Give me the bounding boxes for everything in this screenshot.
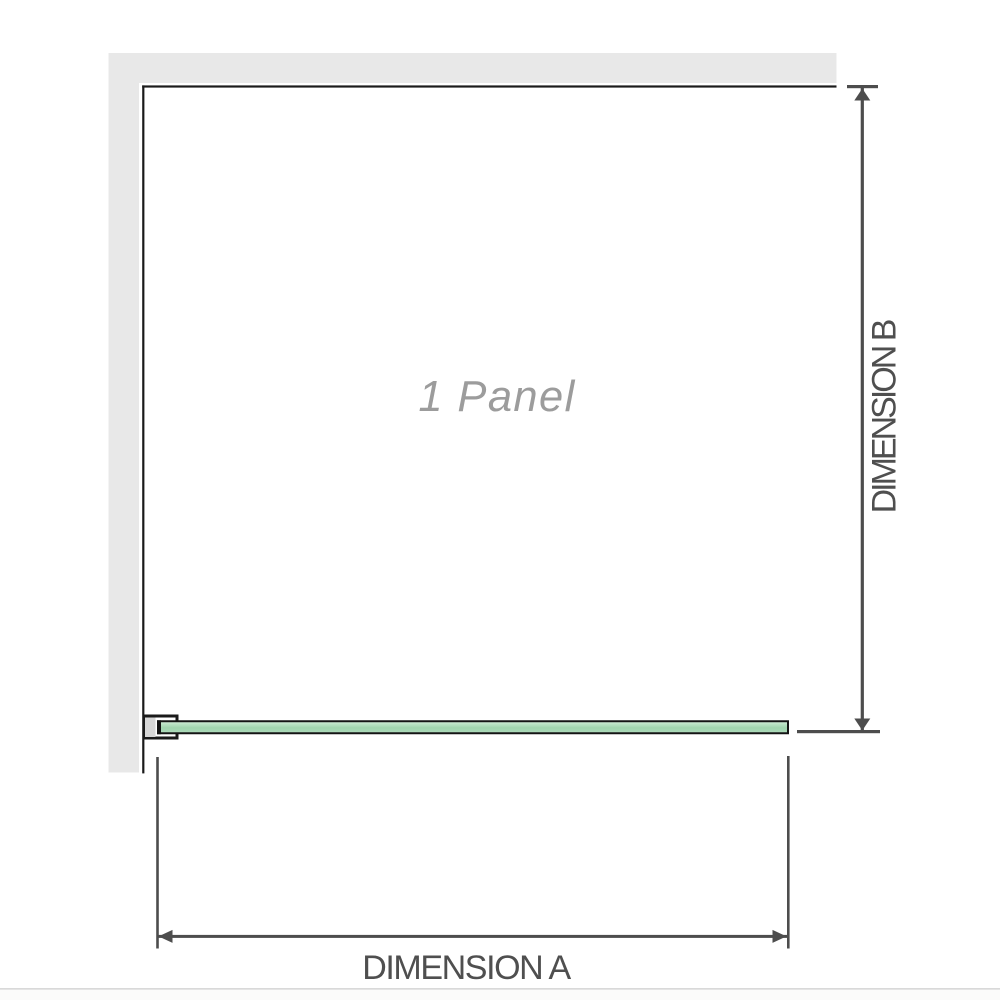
svg-text:DIMENSION A: DIMENSION A	[362, 949, 571, 987]
svg-text:1 Panel: 1 Panel	[418, 373, 575, 421]
svg-text:DIMENSION B: DIMENSION B	[865, 320, 903, 513]
